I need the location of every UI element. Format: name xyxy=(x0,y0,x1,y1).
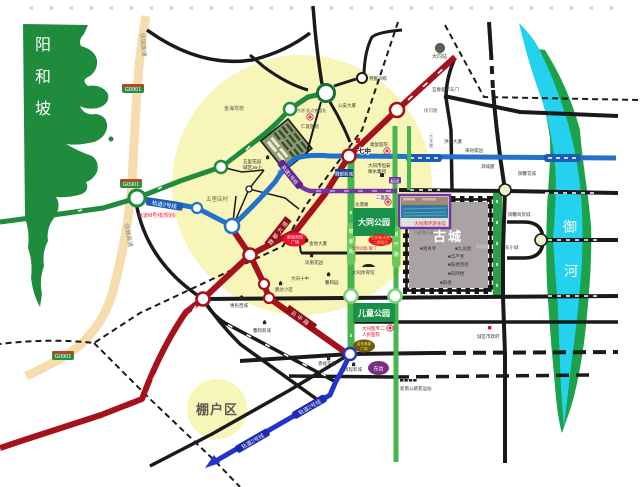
svg-text:金海驾校: 金海驾校 xyxy=(224,105,244,112)
svg-text:城区26小: 城区26小 xyxy=(243,164,262,171)
svg-text:路: 路 xyxy=(394,251,399,258)
svg-text:阳: 阳 xyxy=(35,36,51,54)
svg-text:魏都新城: 魏都新城 xyxy=(335,171,353,178)
svg-text:大同医专二: 大同医专二 xyxy=(362,325,385,332)
svg-text:东城墙: 东城墙 xyxy=(476,243,488,249)
svg-text:凤凰花园: 凤凰花园 xyxy=(305,259,323,266)
svg-text:河: 河 xyxy=(564,263,578,279)
svg-text:大同站: 大同站 xyxy=(432,53,447,60)
svg-text:古城: 古城 xyxy=(433,229,463,244)
svg-text:G0901: G0901 xyxy=(125,87,142,93)
svg-text:广场: 广场 xyxy=(360,346,368,351)
svg-text:金地大厦: 金地大厦 xyxy=(309,240,327,247)
svg-text:仁爱医院: 仁爱医院 xyxy=(301,123,319,130)
svg-text:棚户区: 棚户区 xyxy=(196,402,238,417)
svg-text:小皮巷小区: 小皮巷小区 xyxy=(414,229,434,235)
svg-text:大同十中: 大同十中 xyxy=(291,275,309,282)
svg-text:携程新城: 携程新城 xyxy=(344,366,362,373)
svg-text:■四牌楼: ■四牌楼 xyxy=(448,270,465,277)
svg-text:五里花园: 五里花园 xyxy=(243,158,261,165)
svg-text:特警训练: 特警训练 xyxy=(369,75,387,82)
svg-text:大同市恒安: 大同市恒安 xyxy=(368,162,391,169)
svg-text:香缇花园: 香缇花园 xyxy=(318,360,336,367)
svg-text:大同公园·南门: 大同公园·南门 xyxy=(352,246,376,251)
svg-text:开: 开 xyxy=(394,242,399,248)
svg-text:城区市政府: 城区市政府 xyxy=(477,333,500,340)
svg-text:路: 路 xyxy=(429,142,433,148)
svg-text:七中: 七中 xyxy=(358,146,371,155)
svg-text:恒安新天地: 恒安新天地 xyxy=(371,235,390,240)
svg-text:新南公路客运站: 新南公路客运站 xyxy=(400,385,432,392)
svg-text:东信: 东信 xyxy=(373,366,383,373)
svg-text:御馨商贸城: 御馨商贸城 xyxy=(508,211,531,218)
svg-text:街司路: 街司路 xyxy=(424,107,438,114)
svg-text:坡: 坡 xyxy=(35,100,51,118)
svg-text:康复医院: 康复医院 xyxy=(370,141,388,148)
svg-text:二期项目: 二期项目 xyxy=(373,240,388,245)
svg-text:G0901: G0901 xyxy=(55,354,72,360)
svg-text:大同体育馆: 大同体育馆 xyxy=(352,269,375,276)
svg-text:宜春超市东门: 宜春超市东门 xyxy=(432,86,459,93)
svg-text:御馨花城: 御馨花城 xyxy=(518,170,536,177)
svg-text:儿童公园: 儿童公园 xyxy=(357,308,390,318)
svg-text:鹏达小区: 鹏达小区 xyxy=(275,286,293,293)
svg-text:大同公园: 大同公园 xyxy=(358,217,390,227)
svg-text:广场: 广场 xyxy=(291,239,299,245)
svg-text:惠民西城: 惠民西城 xyxy=(230,302,248,309)
svg-text:东原·起点售楼处: 东原·起点售楼处 xyxy=(297,107,326,113)
svg-text:都: 都 xyxy=(349,239,354,245)
svg-text:泗城厦: 泗城厦 xyxy=(481,163,495,170)
svg-text:御: 御 xyxy=(563,219,577,235)
svg-text:人民医院: 人民医院 xyxy=(362,331,380,338)
svg-text:大同南环游泳馆: 大同南环游泳馆 xyxy=(414,220,446,227)
svg-text:■九龙壁: ■九龙壁 xyxy=(455,245,472,252)
svg-text:来财家园: 来财家园 xyxy=(465,147,483,154)
svg-text:■鼓楼西街: ■鼓楼西街 xyxy=(448,261,469,268)
svg-text:■鼓楼: ■鼓楼 xyxy=(440,279,452,286)
svg-text:龙港路: 龙港路 xyxy=(355,201,369,208)
svg-text:五里店村: 五里店村 xyxy=(206,195,229,203)
svg-text:金车美泉: 金车美泉 xyxy=(357,341,372,346)
svg-text:■清真寺: ■清真寺 xyxy=(420,245,437,252)
svg-text:G0901: G0901 xyxy=(123,182,140,188)
svg-text:和: 和 xyxy=(35,68,51,86)
svg-text:轨道M号线(规划): 轨道M号线(规划) xyxy=(138,212,176,219)
svg-text:东小城: 东小城 xyxy=(505,244,519,251)
svg-text:洪泰大厦: 洪泰大厦 xyxy=(444,138,462,145)
svg-text:馨和新城: 馨和新城 xyxy=(253,327,271,334)
svg-text:■华严寺: ■华严寺 xyxy=(448,253,465,260)
svg-text:公安大厦: 公安大厦 xyxy=(338,102,356,109)
svg-text:馨和园: 馨和园 xyxy=(325,279,339,286)
